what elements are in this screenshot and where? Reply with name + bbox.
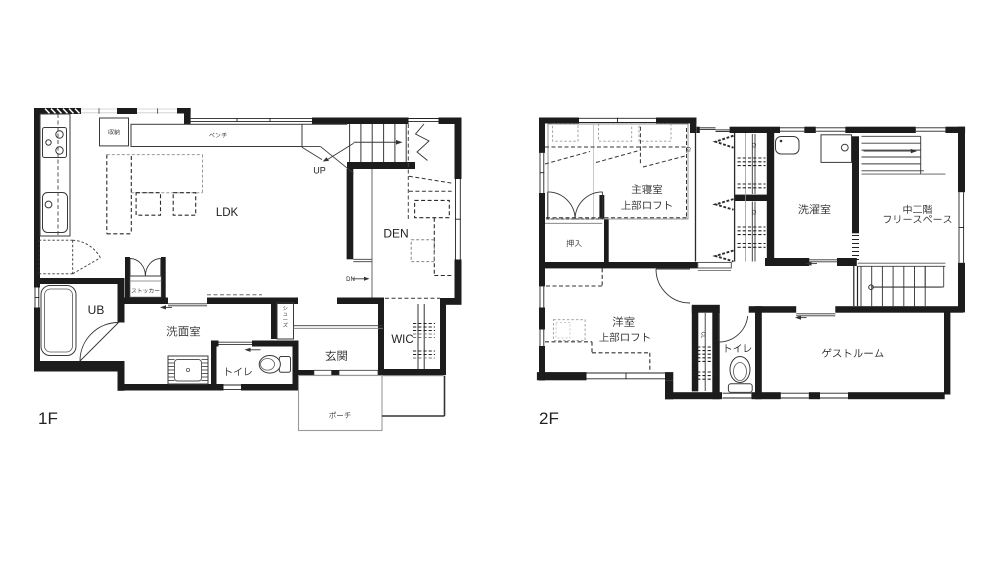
svg-text:CL: CL <box>750 210 756 217</box>
svg-text:1F: 1F <box>38 409 58 428</box>
svg-text:LDK: LDK <box>216 207 239 219</box>
svg-text:CL: CL <box>750 143 756 150</box>
svg-text:CL: CL <box>685 147 691 154</box>
svg-text:CL: CL <box>700 332 706 339</box>
svg-text:UB: UB <box>88 303 105 317</box>
svg-text:UP: UP <box>313 166 326 176</box>
svg-text:DEN: DEN <box>383 227 408 241</box>
svg-text:DN: DN <box>346 277 355 283</box>
svg-text:WIC: WIC <box>391 334 413 346</box>
svg-text:2F: 2F <box>539 409 559 428</box>
